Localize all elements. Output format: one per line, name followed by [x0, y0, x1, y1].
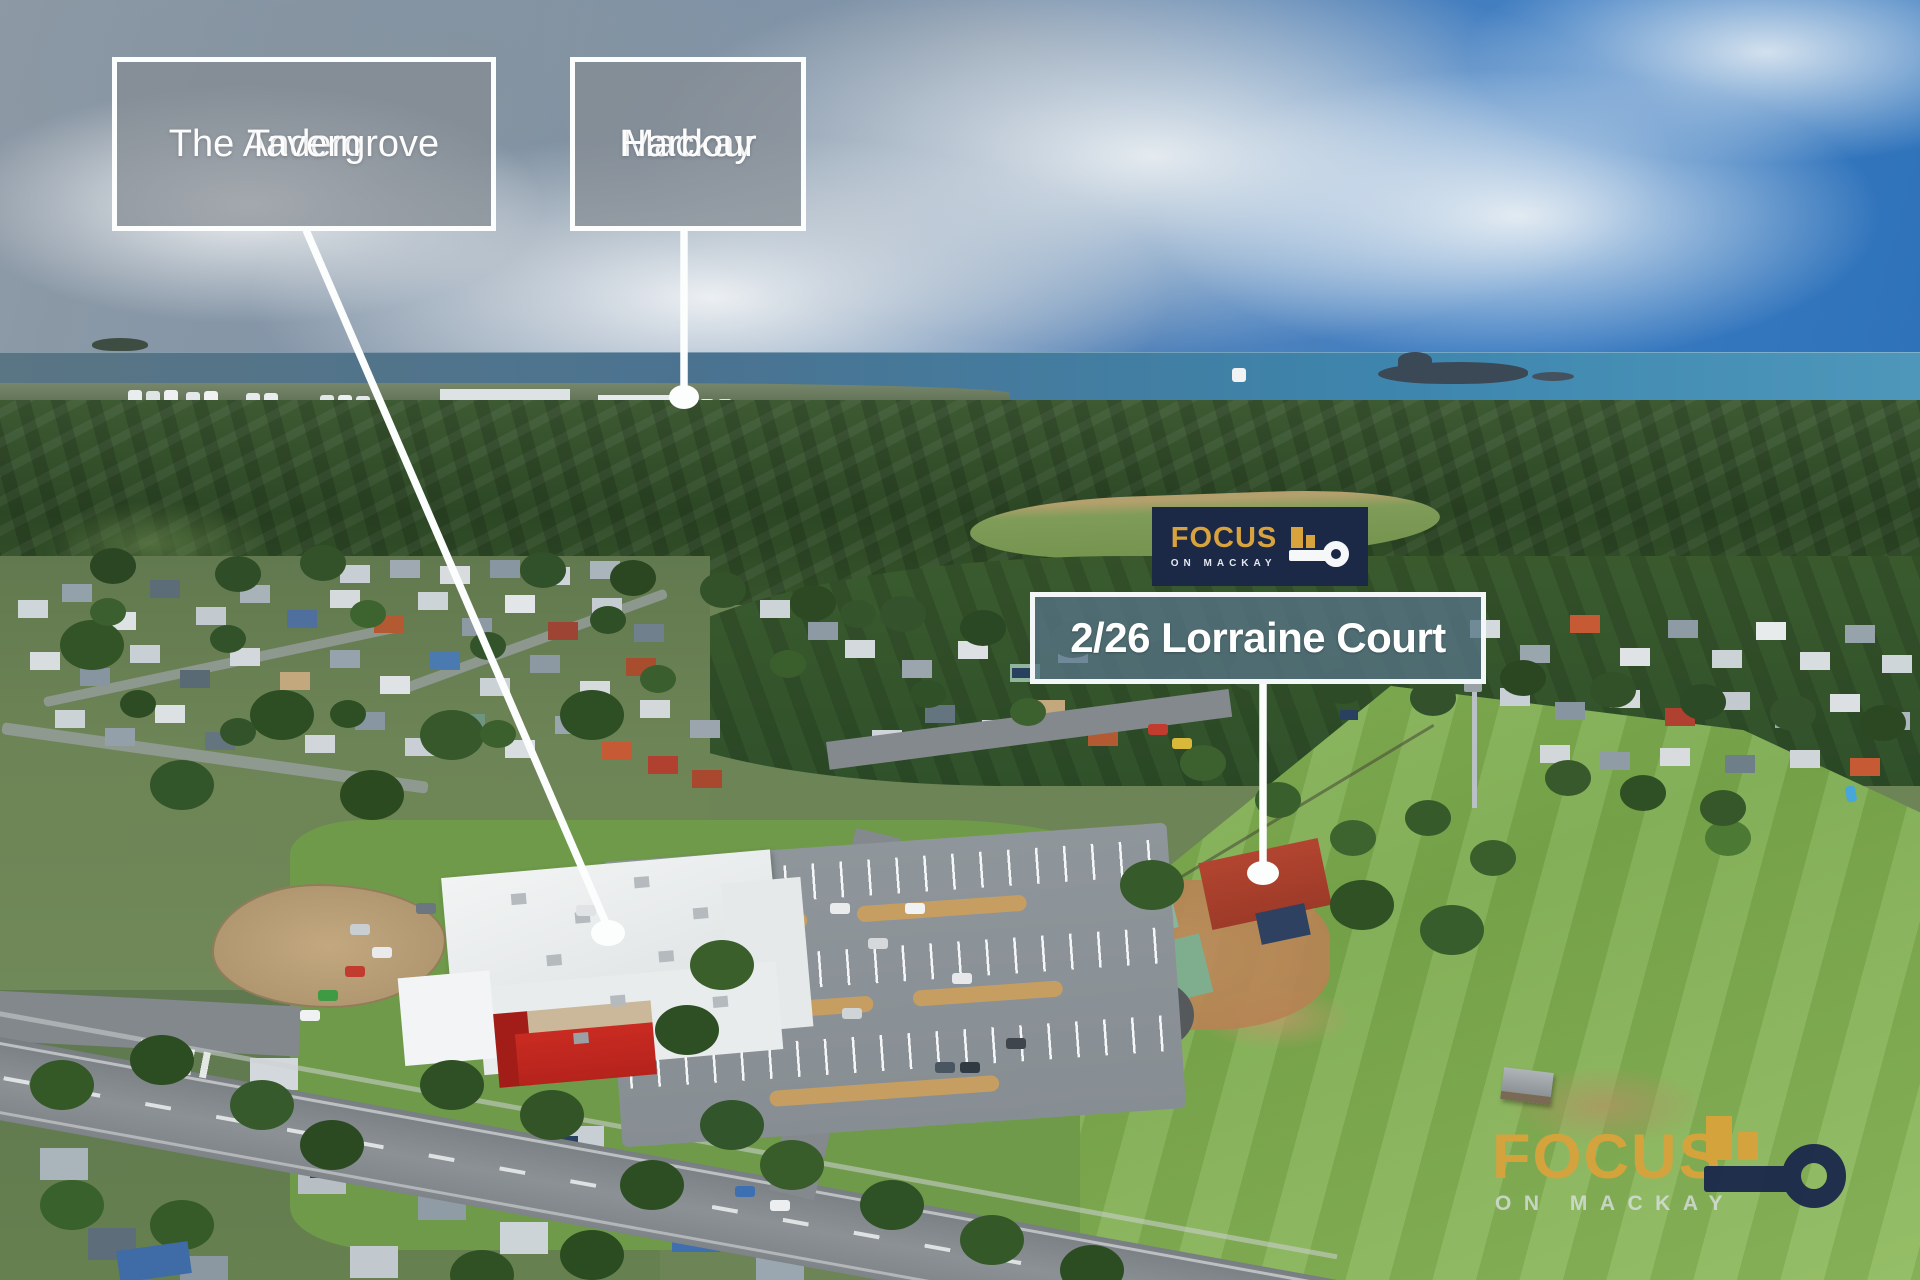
key-ring: [1323, 541, 1349, 567]
key-ring: [1782, 1144, 1846, 1208]
key-bar: [1706, 1116, 1732, 1160]
key-icon: [1289, 527, 1349, 567]
brand-plate-text: FOCUS ON MACKAY: [1171, 524, 1278, 569]
harbour-label-line2: Harbour: [619, 116, 756, 173]
key-bar: [1738, 1132, 1758, 1160]
address-text: 2/26 Lorraine Court: [1070, 614, 1446, 662]
telecom-tower: [1472, 690, 1477, 808]
address-label: 2/26 Lorraine Court: [1030, 592, 1486, 684]
key-bar: [1291, 527, 1303, 548]
island-left: [92, 338, 148, 351]
brand-plate-name: FOCUS: [1171, 524, 1278, 553]
landscape-island: [912, 980, 1063, 1006]
watermark-name: FOCUS: [1492, 1126, 1723, 1189]
tavern-building: [389, 840, 827, 1106]
aerial-photo: The Andergrove Tavern Mackay Harbour 2/2…: [0, 0, 1920, 1280]
islet: [1532, 372, 1574, 381]
field-shed: [1500, 1067, 1554, 1105]
tavern-label: The Andergrove Tavern: [112, 57, 496, 231]
brand-plate-tagline: ON MACKAY: [1171, 558, 1277, 569]
brand-watermark: FOCUS ON MACKAY: [1492, 1116, 1892, 1226]
harbour-label: Mackay Harbour: [570, 57, 806, 231]
brand-plate: FOCUS ON MACKAY: [1152, 507, 1368, 586]
key-bar: [1306, 535, 1315, 548]
landscape-island: [769, 1075, 1000, 1107]
landscape-island: [856, 895, 1027, 923]
tavern-annex: [398, 970, 497, 1066]
island-peak: [1398, 352, 1432, 368]
watermark-tagline: ON MACKAY: [1495, 1192, 1735, 1216]
rooftop-ac-units: [389, 875, 405, 887]
tavern-label-line2: Tavern: [247, 116, 361, 173]
cars: [0, 0, 20, 11]
bottleshop: [515, 1022, 657, 1086]
